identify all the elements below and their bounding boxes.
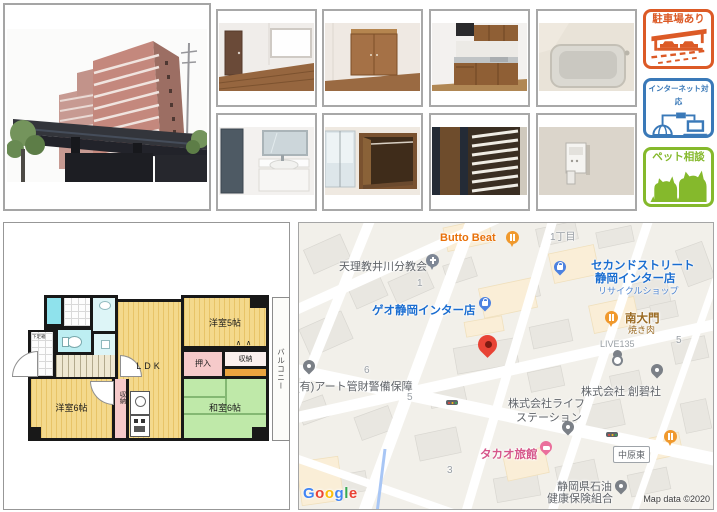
badge-pets-label: ペット相談 — [646, 151, 711, 164]
map-label-live135: LIVE135 — [600, 339, 635, 349]
poi-pin-icon — [650, 364, 664, 382]
map-attribution: Map data ©2020 — [643, 494, 710, 504]
floorplan-panel: 洋室5帖 押入 収納 ∧∧ 和室6帖 LDK 洋室6帖 収納 下足箱 バルコニー — [3, 222, 290, 510]
label-western6: 洋室6帖 — [31, 401, 112, 414]
room-storage-mid — [115, 379, 129, 438]
label-balcony: バルコニー — [276, 348, 287, 391]
closet-room-image — [325, 23, 420, 91]
church-pin-icon — [426, 254, 439, 267]
label-vent-marks: ∧∧ — [226, 339, 266, 347]
restaurant-pin-icon — [664, 430, 677, 443]
entrance-door-arc — [12, 351, 38, 377]
thumbnail-closet-room[interactable] — [322, 9, 423, 107]
thumbnail-kitchen[interactable] — [429, 9, 530, 107]
google-logo[interactable]: Google — [303, 485, 358, 502]
map-label-sekiyu-2: 健康保険組合 — [547, 490, 613, 506]
google-map[interactable]: Butto Beat 天理教井川分教会 1 ゲオ静岡インター店 1丁目 セカンド… — [298, 222, 714, 510]
map-label-block6: 6 — [364, 365, 370, 376]
bathtub — [47, 298, 61, 324]
washroom — [93, 298, 115, 331]
dogs-icon — [650, 164, 708, 202]
vanity-room — [94, 334, 115, 355]
open-closet-image — [325, 127, 420, 195]
label-storage-mid: 収納 — [116, 391, 126, 404]
hallway — [56, 355, 115, 377]
badge-pets: ペット相談 — [643, 147, 714, 207]
thumbnail-living-room[interactable] — [216, 9, 317, 107]
badge-internet: インターネット対応 — [643, 78, 714, 138]
label-japanese6: 和室6帖 — [184, 401, 266, 414]
thumbnail-washbasin[interactable] — [216, 113, 317, 211]
kitchen-image — [432, 23, 527, 91]
poi-pin-icon — [614, 480, 628, 498]
carport-icon — [650, 26, 708, 64]
thumbnail-bathtub[interactable] — [536, 9, 637, 107]
label-ldk: LDK — [118, 361, 181, 371]
map-label-soheki: 株式会社 創碧社 — [581, 383, 661, 399]
building-exterior-image — [7, 29, 207, 182]
map-label-geo: ゲオ静岡インター店 — [372, 302, 476, 318]
floorplan-walls: 洋室5帖 押入 収納 ∧∧ 和室6帖 LDK 洋室6帖 収納 下足箱 — [28, 295, 269, 441]
kitchen-sink — [130, 391, 150, 415]
map-label-yakiniku: 焼き肉 — [628, 323, 655, 336]
traffic-light-icon — [606, 432, 618, 437]
bathroom-floor — [64, 298, 90, 326]
floorplan-drawing: 洋室5帖 押入 収納 ∧∧ 和室6帖 LDK 洋室6帖 収納 下足箱 バルコニー — [28, 295, 290, 443]
map-label-block1: 1 — [417, 278, 423, 289]
shop-pin-icon — [553, 261, 567, 279]
map-label-art-keibi: (有)アート管財警備保障 — [298, 378, 413, 394]
restaurant-pin-icon — [506, 231, 519, 244]
poi-pin-icon — [561, 421, 575, 439]
hotel-pin-icon — [539, 441, 553, 459]
badge-parking-label: 駐車場あり — [646, 13, 711, 26]
shop-pin-icon — [478, 297, 492, 315]
map-label-block5a: 5 — [407, 392, 413, 403]
label-storage-right: 収納 — [225, 354, 266, 364]
label-shoebox: 下足箱 — [32, 334, 46, 340]
badge-parking: 駐車場あり — [643, 9, 714, 69]
main-photo[interactable] — [3, 3, 211, 211]
map-label-block5b: 5 — [676, 335, 682, 346]
map-label-block3: 3 — [447, 465, 453, 476]
poi-pin-icon — [302, 360, 316, 378]
map-label-butto-beat: Butto Beat — [440, 232, 496, 244]
map-label-tenrikyo: 天理教井川分教会 — [339, 258, 427, 274]
counter-strip — [225, 369, 266, 376]
thumbnail-shoe-rack[interactable] — [429, 113, 530, 211]
map-label-nakahara: 中原東 — [613, 446, 650, 463]
restaurant-pin-icon — [605, 311, 618, 324]
traffic-light-icon — [446, 400, 458, 405]
intercom-image — [539, 127, 634, 195]
label-oshiire: 押入 — [184, 358, 222, 369]
washbasin-image — [219, 127, 314, 195]
bathtub-image — [539, 23, 634, 91]
globe-laptop-icon — [650, 108, 708, 138]
map-label-takao: タカオ旅館 — [480, 446, 538, 462]
living-room-image — [219, 23, 314, 91]
thumbnail-intercom[interactable] — [536, 113, 637, 211]
toilet-room — [58, 330, 91, 352]
label-western5: 洋室5帖 — [184, 316, 266, 329]
kitchen-stove — [130, 415, 150, 437]
map-label-chome: 1丁目 — [550, 228, 576, 243]
thumbnail-open-closet[interactable] — [322, 113, 423, 211]
map-label-second-street-3: リサイクルショップ — [598, 284, 679, 297]
small-poi-dot-icon — [612, 355, 623, 366]
property-location-marker — [477, 333, 499, 363]
badge-internet-label: インターネット対応 — [646, 82, 711, 108]
shoe-rack-image — [432, 127, 527, 195]
balcony-strip: バルコニー — [272, 297, 290, 441]
property-listing-page: 駐車場あり インターネット対応 ペット相談 — [0, 0, 717, 512]
